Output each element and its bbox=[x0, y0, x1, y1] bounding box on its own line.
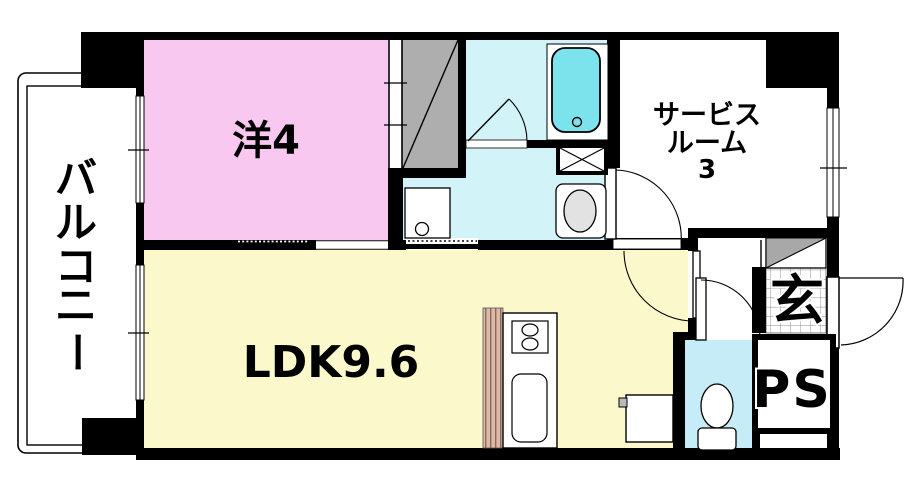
wall-left-c bbox=[136, 400, 144, 420]
entrance-door-arc bbox=[841, 278, 903, 345]
toilet-tank bbox=[698, 428, 736, 450]
wall-corner-bottom-left bbox=[82, 418, 144, 455]
wall-western-room-bottom-b bbox=[388, 240, 406, 250]
wall-closet-bottom bbox=[388, 168, 463, 178]
stove-burner-2 bbox=[522, 338, 538, 350]
western-room-label: 洋4 bbox=[232, 118, 300, 164]
service-room-label-line3: 3 bbox=[698, 155, 716, 185]
floor-plan-canvas: 洋4 LDK9.6 サービス ルーム 3 玄 PS バ ル コ ニ ー bbox=[0, 0, 914, 483]
wall-closet-bath bbox=[458, 40, 466, 178]
wall-corner-top-right bbox=[766, 32, 839, 88]
wall-washroom-bottom bbox=[478, 240, 607, 250]
floor-plan-svg: 洋4 LDK9.6 サービス ルーム 3 玄 PS バ ル コ ニ ー bbox=[0, 0, 914, 483]
service-room-label-line1: サービス bbox=[653, 100, 761, 131]
ldk-label: LDK9.6 bbox=[243, 337, 420, 388]
wall-hall-entrance bbox=[752, 267, 766, 333]
bath-threshold bbox=[466, 140, 527, 148]
wall-service-bottom-right bbox=[688, 228, 838, 238]
balcony-char-2: ル bbox=[55, 198, 97, 247]
toilet-bowl bbox=[701, 384, 733, 428]
wall-left-b bbox=[136, 203, 144, 265]
wall-toilet-left bbox=[673, 332, 685, 450]
wall-corner-top-left bbox=[81, 32, 144, 88]
stove-burner-1 bbox=[522, 324, 538, 336]
toilet-door-leaf bbox=[696, 278, 706, 340]
water-heater bbox=[626, 395, 673, 442]
wall-washroom-left bbox=[388, 178, 403, 240]
western-room-doorway bbox=[316, 240, 388, 250]
bathtub bbox=[552, 48, 600, 132]
balcony-char-5: ー bbox=[52, 331, 101, 373]
toilet-door-arc bbox=[701, 280, 760, 339]
wall-right-a bbox=[827, 88, 839, 108]
entrance-label: 玄 bbox=[770, 269, 824, 332]
wall-washroom-service bbox=[607, 40, 620, 168]
service-room-door-leaf bbox=[605, 168, 616, 239]
washbasin-bowl bbox=[564, 190, 596, 232]
water-heater-tab bbox=[619, 398, 627, 407]
wall-hall-stub-top bbox=[688, 228, 698, 251]
balcony-label: バ ル コ ニ ー bbox=[52, 154, 101, 373]
wall-top bbox=[81, 32, 839, 40]
wall-right-b bbox=[827, 217, 839, 277]
balcony-char-4: ニ bbox=[55, 281, 97, 330]
kitchen-sink bbox=[512, 374, 547, 442]
kitchen-side-panel bbox=[483, 308, 503, 448]
washroom-doorway-sill bbox=[406, 244, 478, 249]
service-room-threshold bbox=[613, 239, 681, 249]
service-room-door-arc bbox=[616, 170, 681, 244]
pipe-space-label: PS bbox=[752, 360, 832, 420]
balcony-char-1: バ bbox=[55, 154, 97, 203]
wall-left-a bbox=[136, 88, 144, 96]
washing-machine-drain bbox=[416, 223, 429, 236]
